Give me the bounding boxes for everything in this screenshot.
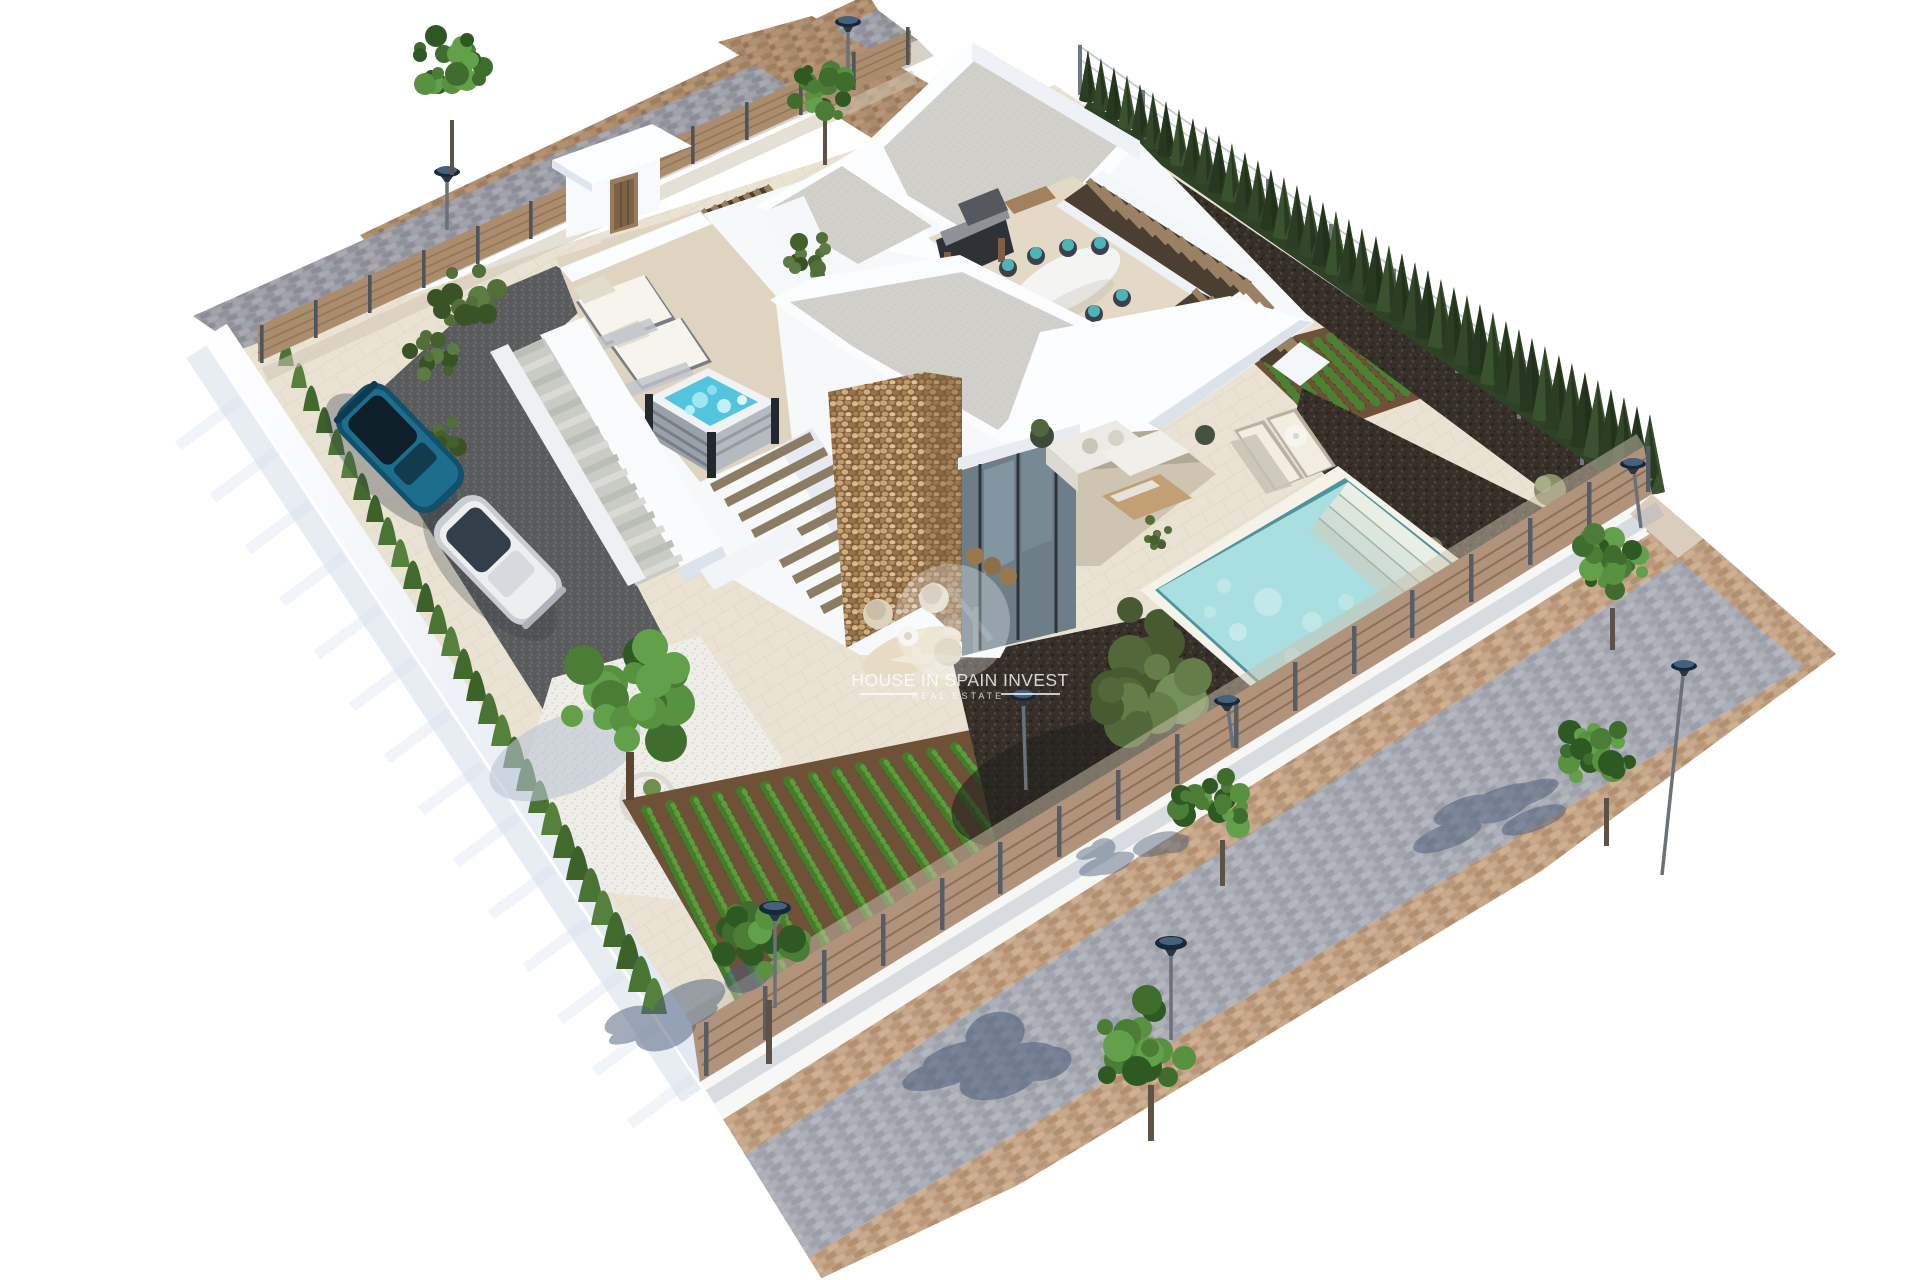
svg-text:HOUSE IN SPAIN INVEST: HOUSE IN SPAIN INVEST	[851, 670, 1068, 690]
svg-text:REAL ESTATE: REAL ESTATE	[912, 691, 1004, 701]
